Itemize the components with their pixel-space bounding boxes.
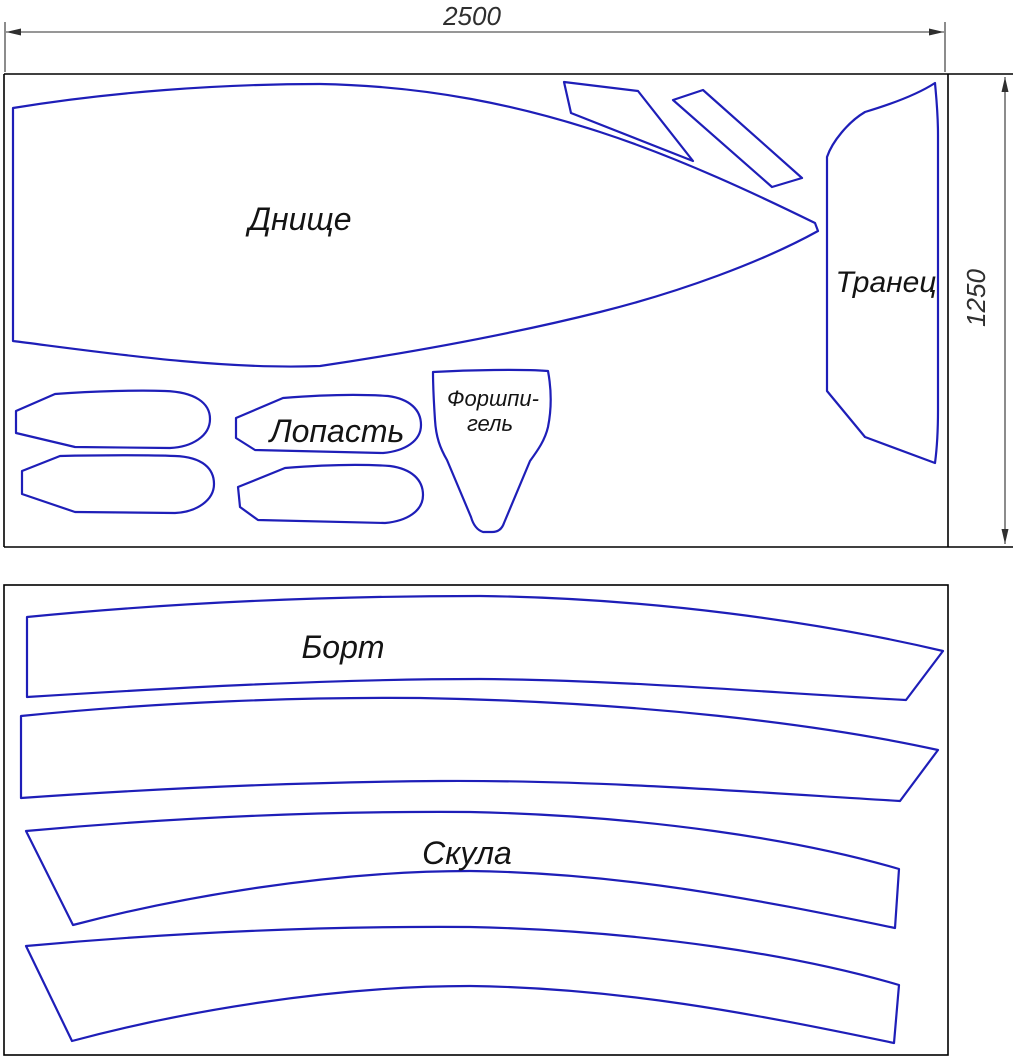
dim-height-value: 1250 <box>961 269 991 327</box>
part-blade-1-outline <box>16 391 210 448</box>
label-forepeak-line1: Форшпи- <box>447 386 539 411</box>
part-side-2-outline <box>21 698 938 801</box>
label-transom: Транец <box>835 266 936 299</box>
label-blade: Лопасть <box>268 413 405 449</box>
arrow-down-icon <box>1002 529 1009 544</box>
sheet-1-frame <box>4 74 1013 547</box>
label-bottom-panel: Днище <box>246 201 352 237</box>
part-chine-2-outline <box>26 927 899 1043</box>
width-dimension: 2500 <box>5 1 945 72</box>
part-bow-strip-1-outline <box>564 82 693 161</box>
part-bow-strip-2-outline <box>673 90 802 187</box>
part-side-1-outline <box>27 596 943 700</box>
arrow-right-icon <box>929 29 944 36</box>
label-chine: Скула <box>422 835 512 871</box>
arrow-up-icon <box>1002 77 1009 92</box>
part-blade-4-outline <box>238 465 423 523</box>
dim-width-value: 2500 <box>442 1 501 31</box>
part-blade-2-outline <box>22 455 214 513</box>
sheet-2-frame <box>4 585 948 1055</box>
height-dimension: 1250 <box>961 77 1009 544</box>
label-forepeak-line2: гель <box>467 411 513 436</box>
part-bottom-panel-outline <box>13 84 818 367</box>
boat-parts-cutting-layout: 2500 1250 Днище Транец Лопасть Форшпи- г… <box>0 0 1015 1060</box>
label-side-panel: Борт <box>301 629 384 665</box>
drawing-svg: 2500 1250 Днище Транец Лопасть Форшпи- г… <box>0 0 1015 1060</box>
arrow-left-icon <box>6 29 21 36</box>
